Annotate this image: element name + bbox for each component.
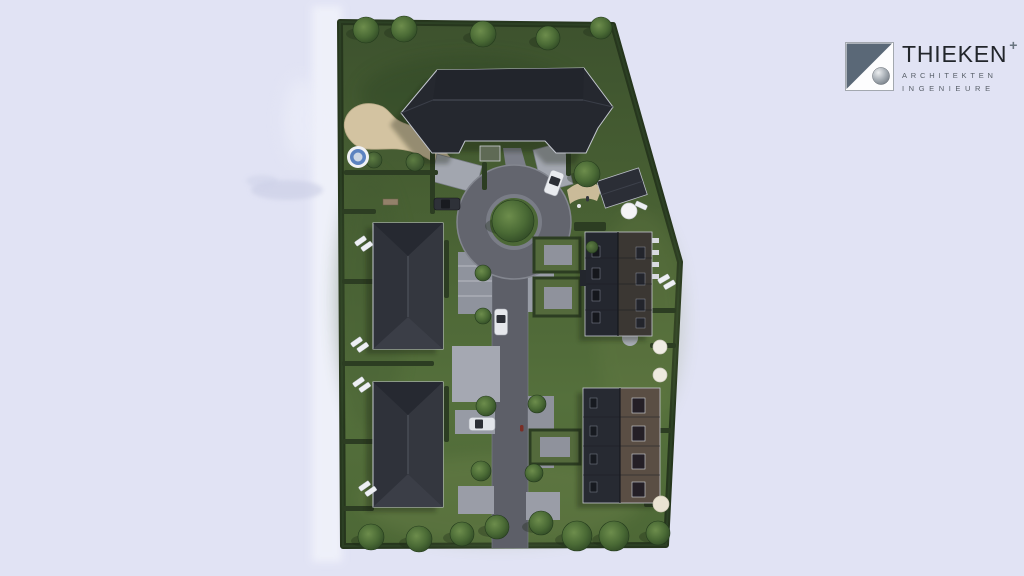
tree (450, 522, 474, 546)
rowhouse-east-lower (583, 388, 660, 503)
tree (406, 526, 432, 552)
hedge-divider (342, 361, 434, 366)
architect-logo: THIEKEN + ARCHITEKTEN INGENIEURE (845, 42, 1017, 93)
logo-text: THIEKEN + ARCHITEKTEN INGENIEURE (902, 42, 1017, 93)
tree (476, 396, 496, 416)
tree (599, 521, 629, 551)
white-car-parking (469, 418, 495, 431)
tagline-ingenieure: INGENIEURE (902, 84, 1017, 93)
tree (391, 16, 417, 42)
tree (485, 515, 509, 539)
site-plan-page: THIEKEN + ARCHITEKTEN INGENIEURE (0, 0, 1024, 576)
bench (383, 199, 398, 205)
logo-mark (845, 42, 894, 91)
person-on-road (520, 425, 524, 432)
brand-name: THIEKEN (902, 43, 1007, 66)
white-car-road (495, 309, 508, 335)
tagline-architekten: ARCHITEKTEN (902, 71, 1017, 80)
hedge-divider (344, 170, 438, 175)
tree (353, 17, 379, 43)
paving-southwest (458, 486, 494, 514)
tree (590, 17, 612, 39)
tree (358, 524, 384, 550)
tree (562, 521, 592, 551)
apartment-west-upper (373, 223, 443, 349)
tree (536, 26, 560, 50)
bike-shelter (480, 146, 500, 161)
person-on-path (586, 196, 589, 202)
dark-car (434, 198, 460, 210)
bush (406, 153, 424, 171)
apartment-west-lower (373, 382, 443, 507)
hedge-divider (342, 209, 376, 214)
stroller (577, 204, 581, 208)
brand-plus-icon: + (1009, 38, 1017, 52)
tree (470, 21, 496, 47)
tree (646, 521, 670, 545)
tree (471, 461, 491, 481)
terrace-west-mid (452, 346, 500, 402)
tree (525, 464, 543, 482)
bush (586, 241, 598, 253)
hedge-block-east (574, 222, 606, 231)
logo-sphere (873, 68, 890, 85)
entrance-bump (580, 270, 586, 286)
tree (475, 265, 491, 281)
tree (528, 395, 546, 413)
tree (574, 161, 600, 187)
tree (529, 511, 553, 535)
tree (475, 308, 491, 324)
roundabout-tree (492, 200, 534, 242)
